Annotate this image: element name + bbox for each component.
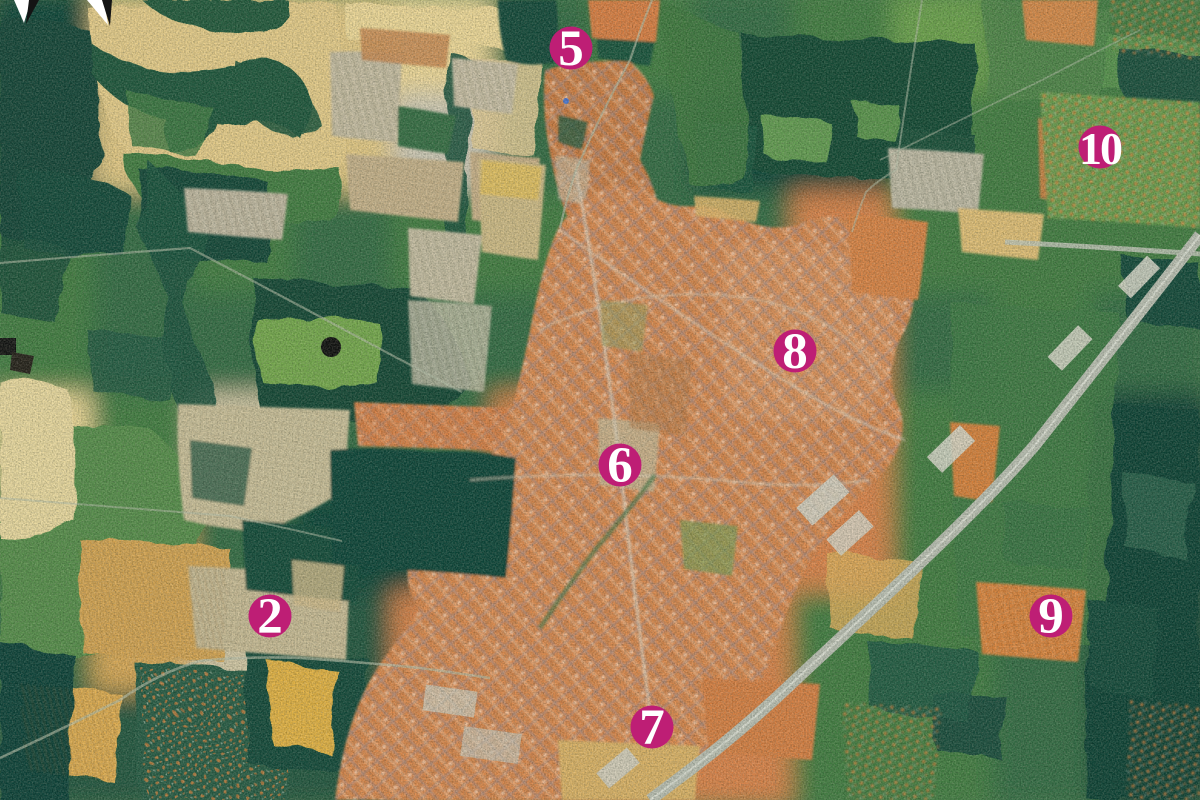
svg-text:5: 5	[558, 21, 584, 77]
svg-text:7: 7	[639, 700, 665, 756]
svg-text:9: 9	[1038, 589, 1064, 645]
svg-text:8: 8	[782, 324, 808, 380]
svg-text:10: 10	[1079, 123, 1122, 174]
svg-text:6: 6	[607, 438, 633, 494]
svg-text:2: 2	[257, 589, 283, 645]
